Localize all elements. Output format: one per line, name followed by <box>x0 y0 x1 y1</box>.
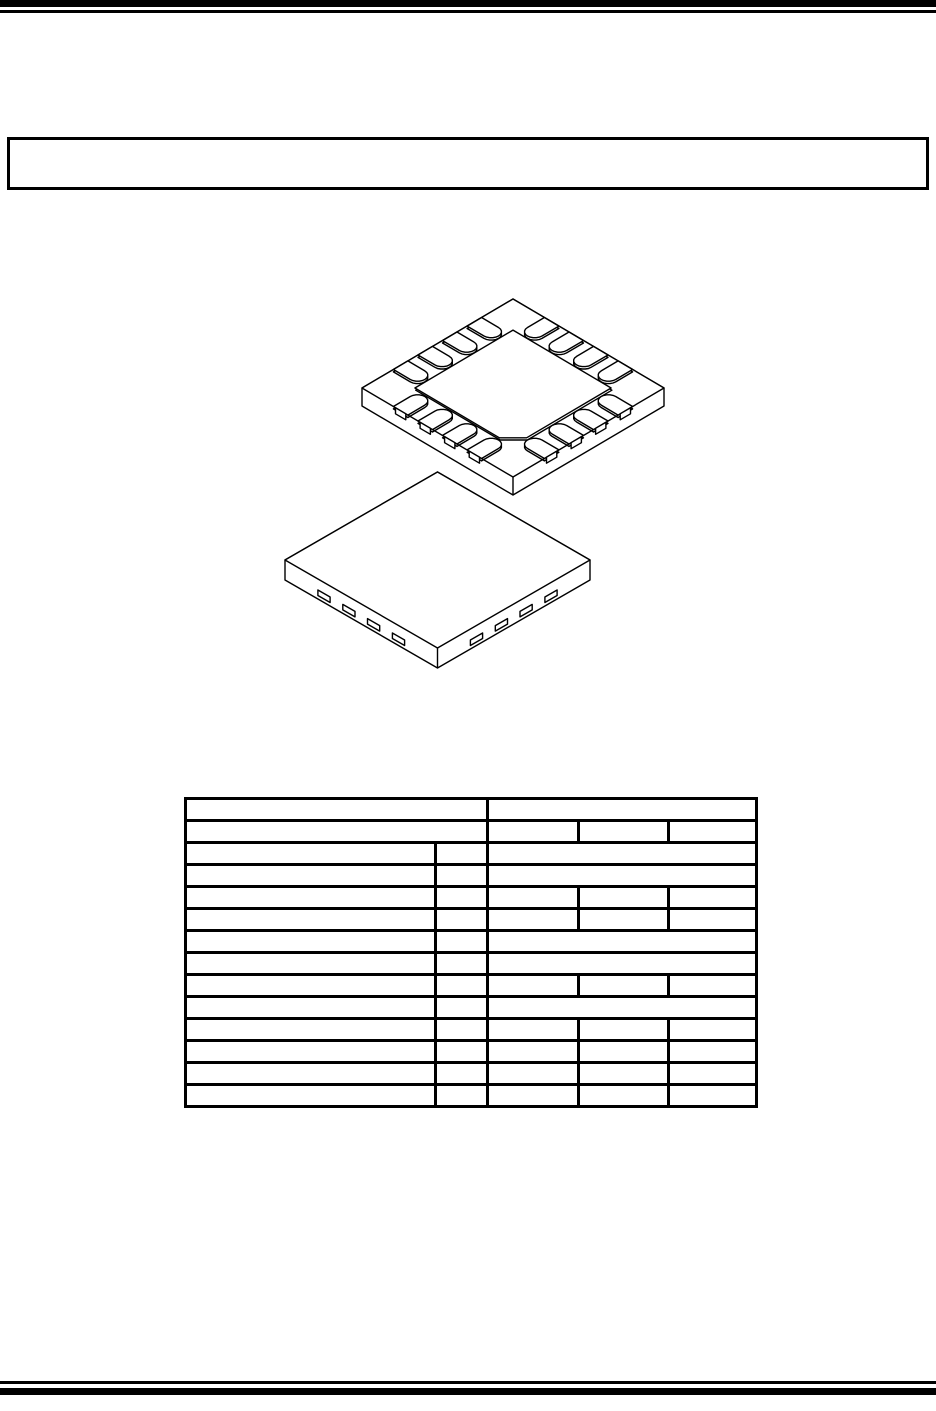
table-cell-r12c4 <box>579 1041 669 1063</box>
table-cell-r1c1 <box>186 799 488 821</box>
table-cell-r1c2 <box>488 799 757 821</box>
table-cell-r2c4 <box>669 821 757 843</box>
table-row-12 <box>186 1041 757 1063</box>
table-cell-r2c2 <box>488 821 579 843</box>
table-cell-r12c5 <box>669 1041 757 1063</box>
table-cell-r4c1 <box>186 865 436 887</box>
table-cell-r11c3 <box>488 1019 579 1041</box>
table-cell-r5c2 <box>436 887 488 909</box>
table-cell-r9c4 <box>579 975 669 997</box>
table-cell-r13c2 <box>436 1063 488 1085</box>
table-row-2 <box>186 821 757 843</box>
table-row-9 <box>186 975 757 997</box>
table-cell-r3c1 <box>186 843 436 865</box>
table-row-14 <box>186 1085 757 1107</box>
table-cell-r6c4 <box>579 909 669 931</box>
table-cell-r7c2 <box>436 931 488 953</box>
table-cell-r2c3 <box>579 821 669 843</box>
table-row-6 <box>186 909 757 931</box>
table-row-1 <box>186 799 757 821</box>
table-cell-r12c2 <box>436 1041 488 1063</box>
table-cell-r14c5 <box>669 1085 757 1107</box>
table-cell-r14c4 <box>579 1085 669 1107</box>
package-top-face <box>285 472 590 648</box>
table-cell-r7c3 <box>488 931 757 953</box>
table-cell-r4c3 <box>488 865 757 887</box>
table-cell-r12c3 <box>488 1041 579 1063</box>
table-cell-r2c1 <box>186 821 488 843</box>
table-row-5 <box>186 887 757 909</box>
table-cell-r14c1 <box>186 1085 436 1107</box>
table-cell-r5c4 <box>579 887 669 909</box>
table-cell-r11c4 <box>579 1019 669 1041</box>
table-cell-r9c2 <box>436 975 488 997</box>
table-row-3 <box>186 843 757 865</box>
table-cell-r3c3 <box>488 843 757 865</box>
table-cell-r11c1 <box>186 1019 436 1041</box>
table-cell-r10c2 <box>436 997 488 1019</box>
table-row-7 <box>186 931 757 953</box>
table-row-11 <box>186 1019 757 1041</box>
page-bottom-rule <box>0 1381 936 1384</box>
table-cell-r14c2 <box>436 1085 488 1107</box>
table-cell-r6c2 <box>436 909 488 931</box>
table-cell-r6c3 <box>488 909 579 931</box>
table-cell-r8c2 <box>436 953 488 975</box>
table-cell-r13c5 <box>669 1063 757 1085</box>
table-cell-r3c2 <box>436 843 488 865</box>
table-cell-r10c3 <box>488 997 757 1019</box>
package-figures <box>0 0 936 720</box>
table-row-10 <box>186 997 757 1019</box>
table-row-13 <box>186 1063 757 1085</box>
table-cell-r11c2 <box>436 1019 488 1041</box>
table-cell-r9c5 <box>669 975 757 997</box>
table-cell-r10c1 <box>186 997 436 1019</box>
table-cell-r11c5 <box>669 1019 757 1041</box>
table-cell-r13c1 <box>186 1063 436 1085</box>
table-cell-r9c3 <box>488 975 579 997</box>
table-cell-r4c2 <box>436 865 488 887</box>
table-cell-r13c4 <box>579 1063 669 1085</box>
table-row-4 <box>186 865 757 887</box>
table-cell-r5c3 <box>488 887 579 909</box>
table-row-8 <box>186 953 757 975</box>
table-cell-r5c5 <box>669 887 757 909</box>
dimensions-table <box>184 797 758 1108</box>
qfn-package-top-view-figure <box>285 472 590 668</box>
table-cell-r9c1 <box>186 975 436 997</box>
table-cell-r6c5 <box>669 909 757 931</box>
qfn-package-bottom-view-figure <box>362 299 664 495</box>
table-cell-r12c1 <box>186 1041 436 1063</box>
table-cell-r5c1 <box>186 887 436 909</box>
table-cell-r6c1 <box>186 909 436 931</box>
page-bottom-border-bar <box>0 1388 936 1395</box>
table-cell-r13c3 <box>488 1063 579 1085</box>
table-cell-r14c3 <box>488 1085 579 1107</box>
table-cell-r8c3 <box>488 953 757 975</box>
table-cell-r8c1 <box>186 953 436 975</box>
table-cell-r7c1 <box>186 931 436 953</box>
